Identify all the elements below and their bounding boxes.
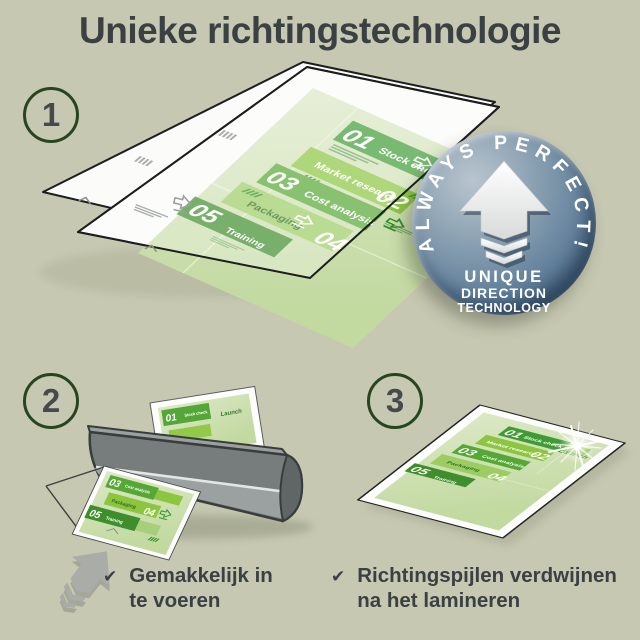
always-perfect-badge: ALWAYS PERFECT! UNIQUE DIRECTION TECHNOL… — [412, 131, 596, 315]
checklist-item-easy-feed: ✔ Gemakkelijk in te voeren — [103, 563, 273, 613]
illustration-canvas: 01 Stock check Market research 02 03 Cos… — [0, 0, 640, 640]
step-3-circle: 3 — [367, 373, 423, 429]
checkmark-icon: ✔ — [103, 564, 117, 614]
step-2-circle: 2 — [23, 373, 79, 429]
step-1-circle: 1 — [23, 87, 79, 143]
step-3-number: 3 — [386, 382, 404, 420]
badge-line-1: UNIQUE — [464, 268, 543, 286]
step-1-number: 1 — [42, 96, 60, 134]
checkmark-icon: ✔ — [331, 564, 345, 614]
step-2-number: 2 — [42, 382, 60, 420]
checklist-line: te voeren — [129, 588, 273, 613]
page-title: Unieke richtingstechnologie — [0, 10, 640, 52]
checklist-line: Richtingspijlen verdwijnen — [357, 563, 617, 588]
checklist-text: Richtingspijlen verdwijnen na het lamine… — [357, 563, 617, 613]
checklist-text: Gemakkelijk in te voeren — [129, 563, 273, 613]
checklist-line: na het lamineren — [357, 588, 617, 613]
badge-line-3: TECHNOLOGY — [457, 301, 550, 315]
badge-line-2: DIRECTION — [461, 285, 547, 301]
checklist-line: Gemakkelijk in — [129, 563, 273, 588]
checklist-item-arrows-disappear: ✔ Richtingspijlen verdwijnen na het lami… — [331, 563, 617, 613]
infographic-page: Unieke richtingstechnologie 1 2 3 — [0, 0, 640, 640]
direction-arrow-icon — [460, 161, 551, 268]
output-panel-number: 01 — [165, 412, 178, 425]
badge-canvas: ALWAYS PERFECT! UNIQUE DIRECTION TECHNOL… — [412, 131, 596, 315]
